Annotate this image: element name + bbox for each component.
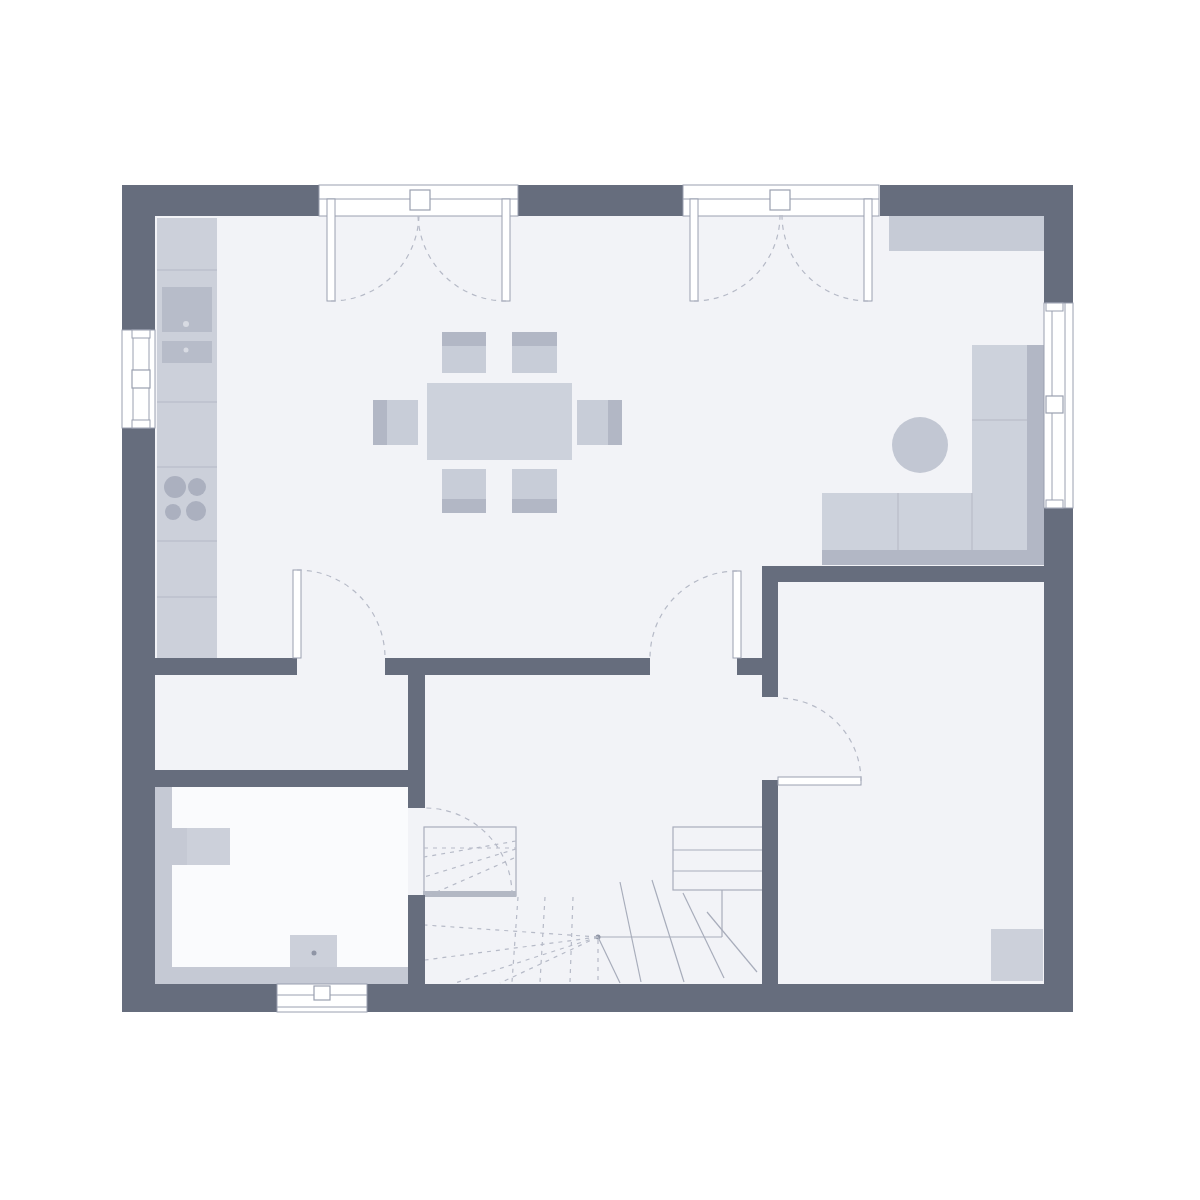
french-door-west-leaf-left	[327, 199, 335, 301]
sofa-seat-vertical	[972, 345, 1027, 493]
hall-wall-west	[155, 658, 297, 675]
burner-bottom-left	[165, 504, 181, 520]
right-window-mullion	[1046, 396, 1063, 413]
chair-bottom-1-back	[442, 499, 486, 513]
left-window-cap-top	[132, 330, 150, 338]
coffee-table-round	[892, 417, 948, 473]
floor-plan-svg	[0, 0, 1200, 1200]
sofa-seat-horizontal	[822, 493, 1027, 550]
entrance-door-mullion	[314, 986, 330, 1000]
chair-bottom-2-back	[512, 499, 557, 513]
pantry-east-wall	[408, 675, 425, 808]
french-door-west-leaf-right	[502, 199, 510, 301]
hall-wall-mid	[385, 658, 650, 675]
right-window-cap-top	[1046, 303, 1063, 311]
right-window-cap-bottom	[1046, 500, 1063, 508]
bedroom-layer	[991, 929, 1043, 981]
washer-base	[155, 828, 187, 865]
burner-bottom-right	[186, 501, 206, 521]
exterior-wall-bottom-right	[367, 984, 1073, 1012]
french-door-east-mullion	[770, 190, 790, 210]
boiler-dot	[312, 951, 317, 956]
floors-layer	[155, 215, 1044, 985]
stair-east-wall-upper	[762, 566, 778, 697]
pantry-door-leaf	[293, 570, 301, 658]
sofa-back-vertical	[1027, 345, 1044, 565]
exterior-wall-left-upper	[122, 185, 155, 330]
stair-east-wall-lower	[762, 780, 778, 985]
kitchen-layer	[157, 218, 217, 658]
chair-top-1-back	[442, 332, 486, 346]
chair-right-back	[608, 400, 622, 445]
bedroom-cabinet	[991, 929, 1043, 981]
oven-knob	[183, 321, 189, 327]
left-window-mullion	[132, 370, 150, 388]
kitchen-counter	[157, 218, 217, 658]
french-door-east-leaf-right	[864, 199, 872, 301]
dining-table	[427, 383, 572, 460]
washer	[187, 828, 230, 865]
exterior-wall-top-mid	[518, 185, 683, 216]
sideboard	[889, 215, 1044, 251]
burner-top-left	[164, 476, 186, 498]
bedroom-door-leaf	[778, 777, 861, 785]
burner-top-right	[188, 478, 206, 496]
sofa-back-horizontal	[822, 550, 1044, 565]
french-door-east-leaf-left	[690, 199, 698, 301]
utility-top-wall	[155, 770, 425, 787]
floor-plan	[0, 0, 1200, 1200]
french-door-west-mullion	[410, 190, 430, 210]
left-window-cap-bottom	[132, 420, 150, 428]
bedroom-top-wall	[778, 566, 1044, 582]
microwave-knob	[184, 348, 189, 353]
exterior-wall-right-upper	[1044, 185, 1073, 303]
exterior-wall-bottom-left	[122, 984, 277, 1012]
exterior-wall-left-lower	[122, 428, 155, 1012]
chair-left-back	[373, 400, 387, 445]
exterior-wall-right-lower	[1044, 508, 1073, 1012]
utility-room-floor	[155, 787, 408, 985]
utility-band-bottom	[155, 967, 408, 985]
stair-west-wall	[408, 895, 425, 985]
utility-band-left	[155, 787, 172, 985]
living-hall-door-leaf	[733, 571, 741, 658]
chair-top-2-back	[512, 332, 557, 346]
